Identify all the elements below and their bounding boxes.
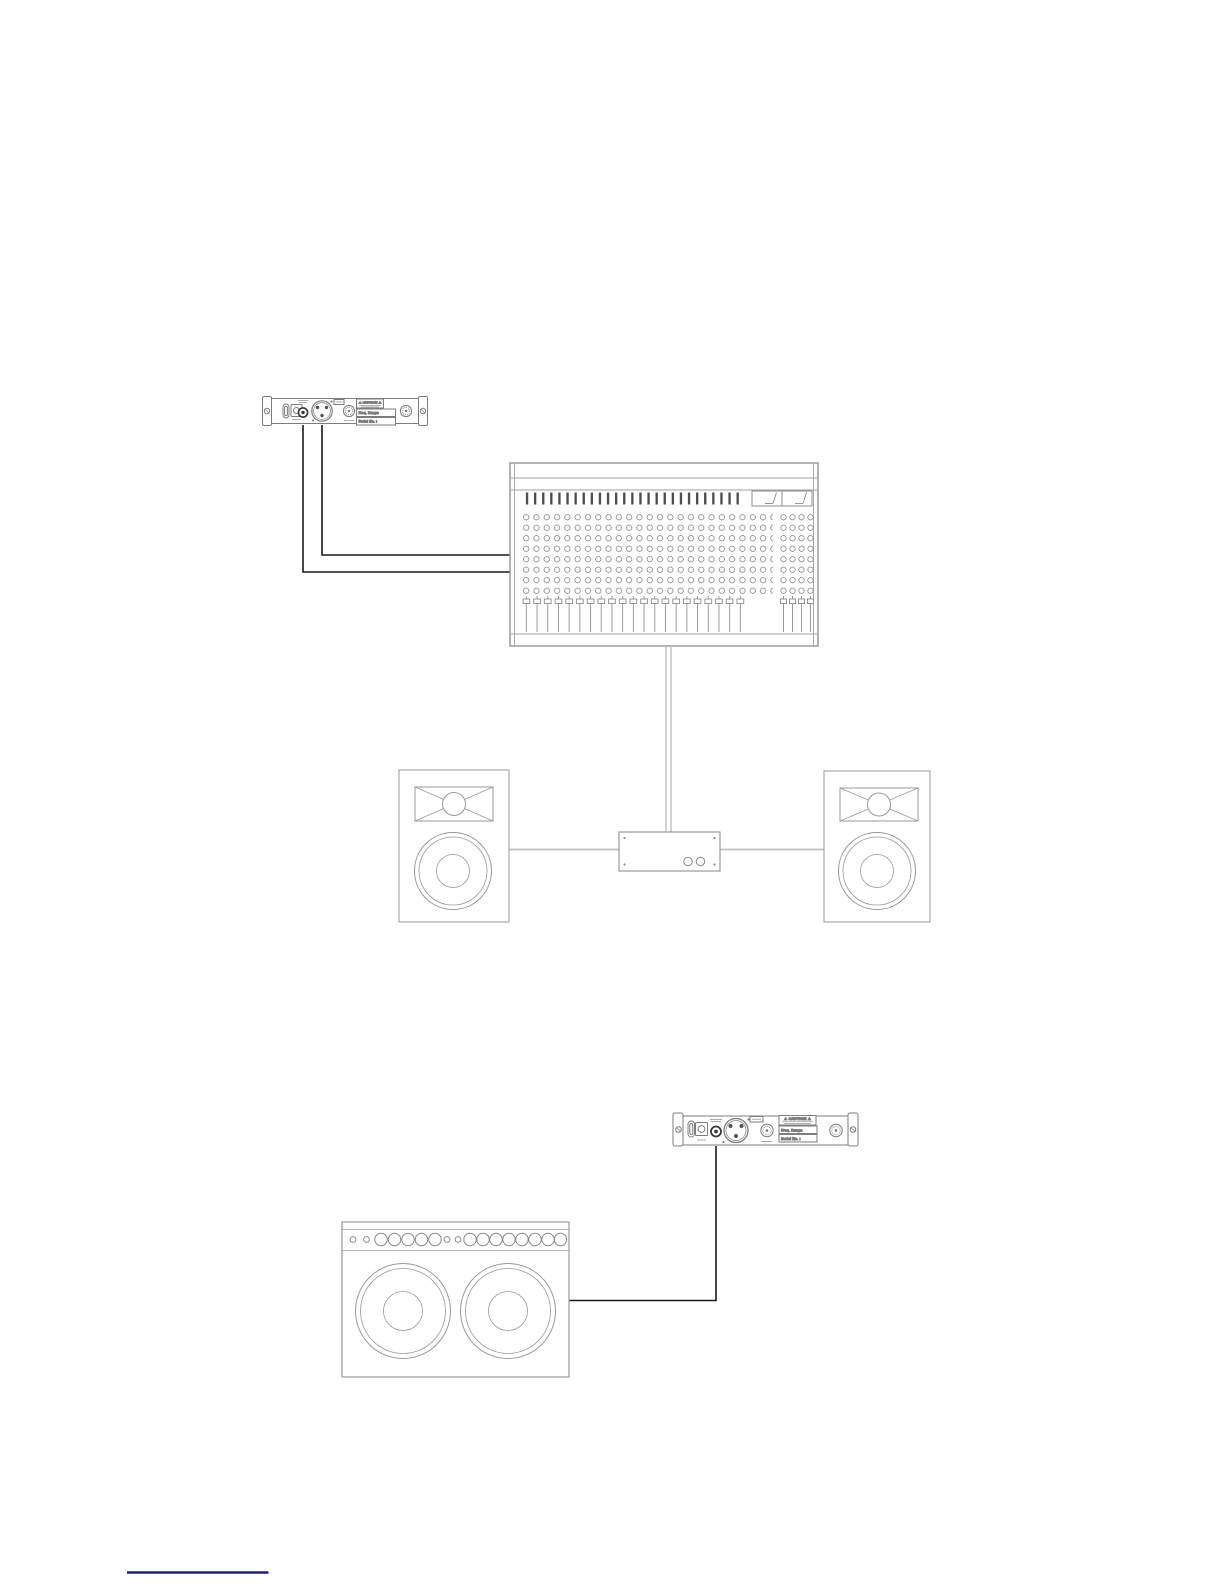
- caution-label: ⚠ CAUTION ⚠: [357, 399, 384, 408]
- speaker-right: [824, 771, 930, 922]
- caution-text: ⚠ CAUTION ⚠: [359, 401, 382, 405]
- speaker-left-horn-tweeter: [415, 787, 493, 821]
- rack-screw-left-icon: [676, 1127, 682, 1133]
- speaker-cable-group: [509, 646, 824, 850]
- speaker-right-horn-tweeter: [840, 788, 918, 821]
- serial-no-label: Serial No. :: [357, 418, 396, 426]
- serial-no-label: Serial No. :: [779, 1135, 817, 1143]
- mixer-knob-grid-master: [779, 512, 815, 596]
- mixer-knob-grid-main: [521, 512, 773, 596]
- wireless-receiver-bottom: ⚠ CAUTION ⚠ Freq. Range Serial No. :: [673, 1113, 858, 1146]
- wireless-receiver-top: ⚠ CAUTION ⚠ Freq. Range Serial No. :: [263, 397, 428, 426]
- mixer-vu-meters: [752, 491, 812, 506]
- hookup-diagram-artwork: ⚠ CAUTION ⚠ Freq. Range Serial No. :: [0, 0, 1224, 1584]
- rack-screw-right-icon: [850, 1127, 856, 1133]
- serial-no-text: Serial No. :: [781, 1137, 801, 1141]
- guitar-amplifier: [342, 1222, 569, 1377]
- cable-receiver-to-guitar-amp: [569, 1146, 716, 1301]
- freq-range-label: Freq. Range: [357, 409, 396, 417]
- manual-page: ⚠ CAUTION ⚠ Freq. Range Serial No. :: [0, 0, 1224, 1584]
- mixer-input-jack-row: [523, 492, 742, 505]
- speaker-left: [399, 770, 509, 922]
- cable-jack-output-to-mixer: [303, 425, 510, 572]
- mixer-fader-row-master: [779, 596, 815, 632]
- balanced-out-label: [750, 1117, 763, 1123]
- freq-range-text: Freq. Range: [359, 411, 379, 415]
- xlr-output-connector: [312, 401, 333, 422]
- mixer-fader-row-main: [521, 596, 746, 632]
- freq-range-text: Freq. Range: [781, 1128, 803, 1132]
- rack-screw-left-icon: [264, 408, 269, 413]
- caution-label: ⚠ CAUTION ⚠: [779, 1116, 816, 1126]
- antenna-connector-b: [830, 1124, 842, 1136]
- serial-no-text: Serial No. :: [359, 420, 378, 424]
- mixing-console: [510, 463, 818, 646]
- power-switch-slot: [283, 404, 289, 418]
- balanced-out-label: [334, 400, 344, 405]
- freq-range-label: Freq. Range: [779, 1126, 817, 1134]
- rack-screw-right-icon: [420, 408, 425, 413]
- power-switch-slot: [688, 1121, 695, 1137]
- cable-receiver-to-mixer-group: [303, 425, 510, 572]
- power-amplifier: [619, 832, 720, 871]
- caution-text: ⚠ CAUTION ⚠: [784, 1117, 812, 1121]
- amp-chassis: [619, 832, 720, 871]
- antenna-connector-b: [400, 405, 411, 416]
- cable-xlr-output-to-mixer: [322, 425, 510, 555]
